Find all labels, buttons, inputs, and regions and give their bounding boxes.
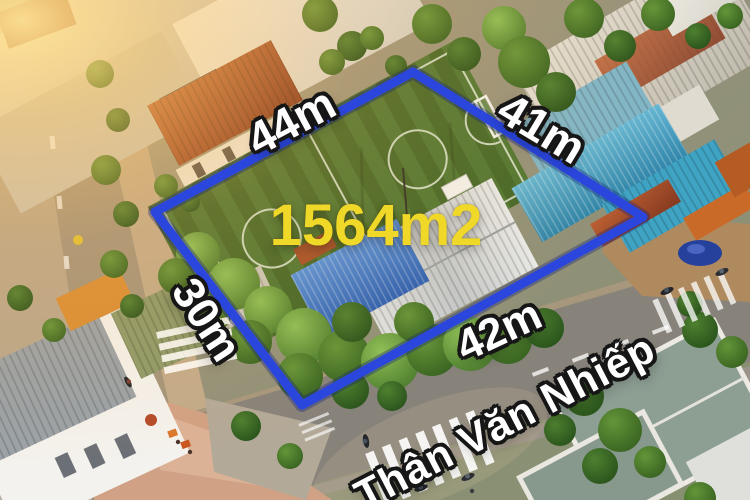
aerial-photo: 44m 41m 30m 42m 1564m2 Thân Văn Nhiếp <box>0 0 750 500</box>
area-label: 1564m2 <box>270 197 483 255</box>
